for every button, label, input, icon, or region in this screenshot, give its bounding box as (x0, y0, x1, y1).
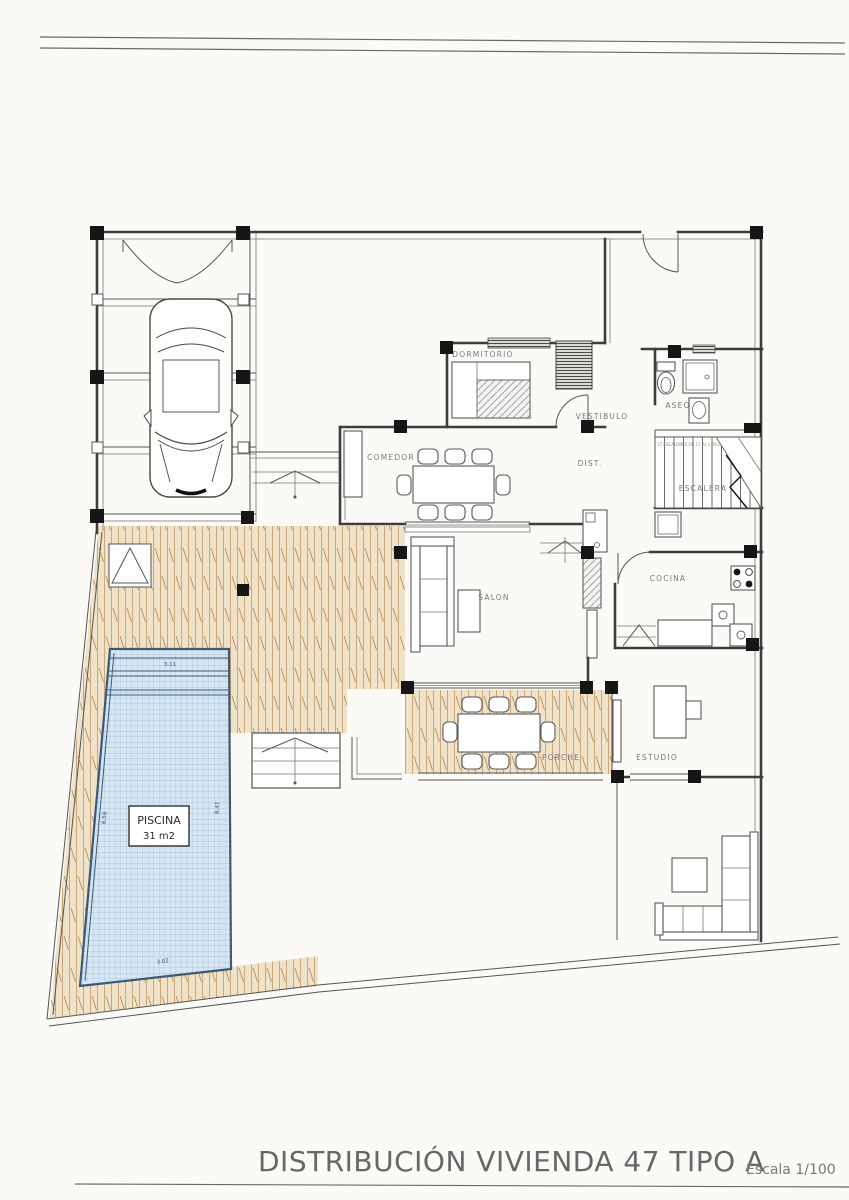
deck-triangle-marker (109, 544, 151, 587)
pool-area: 31 m2 (143, 831, 175, 842)
pool-dim-right: 8.47 (215, 801, 222, 814)
bottom-rule-line (75, 1184, 849, 1187)
sideboard (344, 431, 362, 497)
label-estudio: ESTUDIO (636, 753, 678, 762)
label-salon: SALON (478, 593, 509, 602)
scale-label: Escala 1/100 (746, 1162, 836, 1178)
label-dist: DIST. (578, 459, 603, 468)
kitchen-counter (658, 620, 712, 646)
floor-plan: 3.11 6.58 8.47 3.02 PISCINA 31 m2 (0, 0, 849, 1200)
label-escalera: ESCALERA (679, 484, 727, 493)
pool-name: PISCINA (137, 814, 181, 827)
label-aseo: ASEO (665, 401, 690, 410)
stove (731, 566, 755, 590)
partition-wall (583, 558, 601, 608)
study: ESTUDIO (636, 686, 701, 762)
pool-dim-top: 3.11 (164, 662, 176, 668)
entrance-door (643, 234, 678, 272)
kitchen-step (617, 625, 656, 646)
patio-side-table (672, 858, 707, 892)
sofa (411, 537, 454, 652)
garage-gate (123, 240, 232, 283)
hall-closet (583, 510, 607, 552)
top-rule-lines (40, 37, 845, 54)
pool-label: PISCINA 31 m2 (129, 806, 189, 846)
stair-note: 17 ESCALONES DE 17 RL x 28.0 (657, 442, 721, 447)
pergola-beam (405, 527, 530, 532)
toilet (657, 362, 675, 394)
washbasin (689, 398, 709, 423)
patio-lounge (655, 832, 758, 940)
title-block: DISTRIBUCIÓN VIVIENDA 47 TIPO A Escala 1… (75, 1144, 849, 1187)
dining-room: COMEDOR (344, 431, 530, 532)
coffee-table (458, 590, 480, 632)
deck-steps (252, 733, 340, 788)
label-dormitorio: DORMITORIO (452, 350, 513, 359)
label-comedor: COMEDOR (367, 453, 415, 462)
bed (452, 362, 530, 418)
bedroom-window (488, 338, 550, 348)
fridge (655, 512, 681, 537)
desk (654, 686, 701, 738)
kitchen: COCINA (617, 566, 755, 646)
garage (97, 231, 256, 522)
hall-step (540, 537, 583, 563)
bathroom-window (693, 345, 715, 353)
kitchen-door (618, 552, 650, 584)
bedroom: DORMITORIO (452, 338, 592, 427)
label-vestibulo: VESTIBULO (576, 412, 629, 421)
bathroom: ASEO (657, 345, 717, 423)
scanned-plan-page: 3.11 6.58 8.47 3.02 PISCINA 31 m2 (0, 0, 849, 1200)
salon-door-leaf (587, 610, 597, 658)
plan-title: DISTRIBUCIÓN VIVIENDA 47 TIPO A (258, 1144, 765, 1178)
label-porche: PORCHE (542, 753, 580, 762)
label-cocina: COCINA (650, 574, 687, 583)
pool-dim-left: 6.58 (101, 811, 108, 824)
porch-door-leaf (613, 700, 621, 762)
shower (683, 360, 717, 393)
staircase: 17 ESCALONES DE 17 RL x 28.0 ESCALERA (655, 437, 761, 508)
walkway-edge (352, 737, 402, 779)
living-room: SALON (411, 537, 601, 683)
wardrobe (556, 341, 592, 389)
car (144, 299, 238, 497)
courtyard-steps (250, 452, 340, 499)
